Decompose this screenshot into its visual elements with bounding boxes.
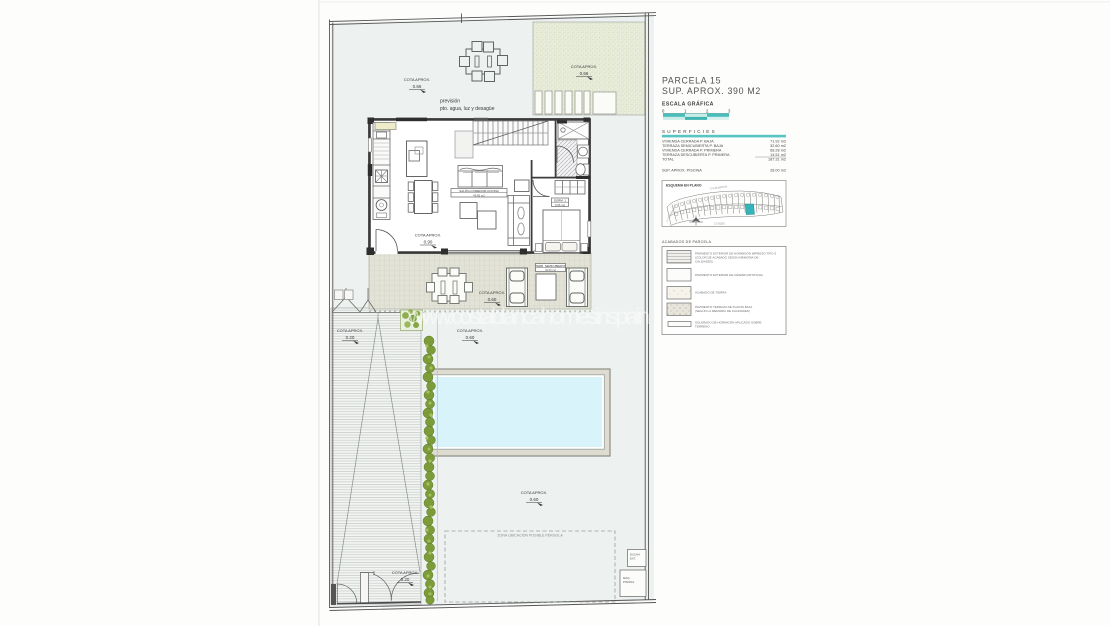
svg-text:DORM. 1: DORM. 1 <box>554 199 566 203</box>
svg-text:ACABADOS DE PARCELA: ACABADOS DE PARCELA <box>662 240 711 244</box>
svg-text:0.60: 0.60 <box>530 497 539 502</box>
svg-text:187.31 m2: 187.31 m2 <box>768 158 786 162</box>
svg-text:14.51 m2: 14.51 m2 <box>770 153 786 157</box>
svg-text:TERRENO: TERRENO <box>695 325 710 329</box>
svg-text:PISCINA: PISCINA <box>623 580 634 584</box>
svg-text:(SEGÚN LA MEMORIA DE CALIDADES: (SEGÚN LA MEMORIA DE CALIDADES) <box>695 308 750 313</box>
svg-text:TERRAZA DESCUBIERTA P. PRIMERA: TERRAZA DESCUBIERTA P. PRIMERA <box>662 153 730 157</box>
svg-text:COTA APROX.: COTA APROX. <box>479 290 506 295</box>
svg-text:COTA APROX.: COTA APROX. <box>521 490 548 495</box>
svg-text:ESQUEMA EN PLANO: ESQUEMA EN PLANO <box>666 184 702 188</box>
svg-text:ESCALA GRÁFICA: ESCALA GRÁFICA <box>662 101 714 108</box>
svg-text:71.92 m2: 71.92 m2 <box>770 140 786 144</box>
svg-text:previsión: previsión <box>440 99 460 105</box>
svg-text:SALÓN-COMEDOR-COCINA: SALÓN-COMEDOR-COCINA <box>459 188 499 193</box>
svg-text:TERR. SEMICUBIERTA: TERR. SEMICUBIERTA <box>536 264 566 268</box>
svg-text:32.60 m2: 32.60 m2 <box>770 144 786 148</box>
svg-text:0.20: 0.20 <box>346 335 355 340</box>
svg-text:68.28 m2: 68.28 m2 <box>770 149 786 153</box>
svg-text:PARCELA 15: PARCELA 15 <box>662 76 721 86</box>
svg-text:www.costablancahomesinspain: www.costablancahomesinspain <box>407 303 650 329</box>
svg-text:0.66: 0.66 <box>413 84 422 89</box>
svg-text:COTA APROX.: COTA APROX. <box>571 64 598 69</box>
svg-text:0.66: 0.66 <box>580 71 589 76</box>
svg-text:COTA APROX.: COTA APROX. <box>337 328 364 333</box>
svg-text:C/ SILES: C/ SILES <box>714 222 725 226</box>
svg-text:SUPERFICIES: SUPERFICIES <box>662 129 717 134</box>
svg-text:COTA APROX.: COTA APROX. <box>392 570 419 575</box>
svg-text:ZONA UBICACIÓN POSIBLE PÉRGOLA: ZONA UBICACIÓN POSIBLE PÉRGOLA <box>497 533 563 538</box>
svg-text:SUP. APROX. 390 M2: SUP. APROX. 390 M2 <box>662 86 761 96</box>
svg-text:pto. agua, luz y desagüe: pto. agua, luz y desagüe <box>440 106 495 112</box>
svg-text:0.60: 0.60 <box>466 335 475 340</box>
svg-text:VIVIENDA CERRADA P. PRIMERA: VIVIENDA CERRADA P. PRIMERA <box>662 149 722 153</box>
svg-text:0.20: 0.20 <box>401 577 410 582</box>
svg-text:28.00 m2: 28.00 m2 <box>770 169 786 173</box>
svg-text:SUP. APROX. PISCINA: SUP. APROX. PISCINA <box>662 169 702 173</box>
svg-text:TERRAZA SEMICUBIERTA P. BAJA: TERRAZA SEMICUBIERTA P. BAJA <box>662 144 724 148</box>
svg-text:VIVIENDA CERRADA P. BAJA: VIVIENDA CERRADA P. BAJA <box>662 140 714 144</box>
svg-text:EXT.: EXT. <box>630 557 636 561</box>
svg-text:0.90: 0.90 <box>424 240 433 245</box>
svg-text:9.95 m2: 9.95 m2 <box>555 203 565 207</box>
svg-text:ACABADO DE TIERRA: ACABADO DE TIERRA <box>695 291 726 295</box>
svg-text:0.60: 0.60 <box>488 297 497 302</box>
svg-text:32.60 m2: 32.60 m2 <box>545 268 556 272</box>
svg-text:COTA APROX.: COTA APROX. <box>404 77 431 82</box>
svg-text:PAVIMENTO EXTERIOR DE CÉSPED A: PAVIMENTO EXTERIOR DE CÉSPED ARTIFICIAL <box>695 272 764 277</box>
svg-text:TOTAL: TOTAL <box>662 158 674 162</box>
svg-text:CALIDADES): CALIDADES) <box>695 260 713 264</box>
svg-text:49.85 m2: 49.85 m2 <box>473 193 485 197</box>
svg-text:COTA APROX.: COTA APROX. <box>415 233 442 238</box>
